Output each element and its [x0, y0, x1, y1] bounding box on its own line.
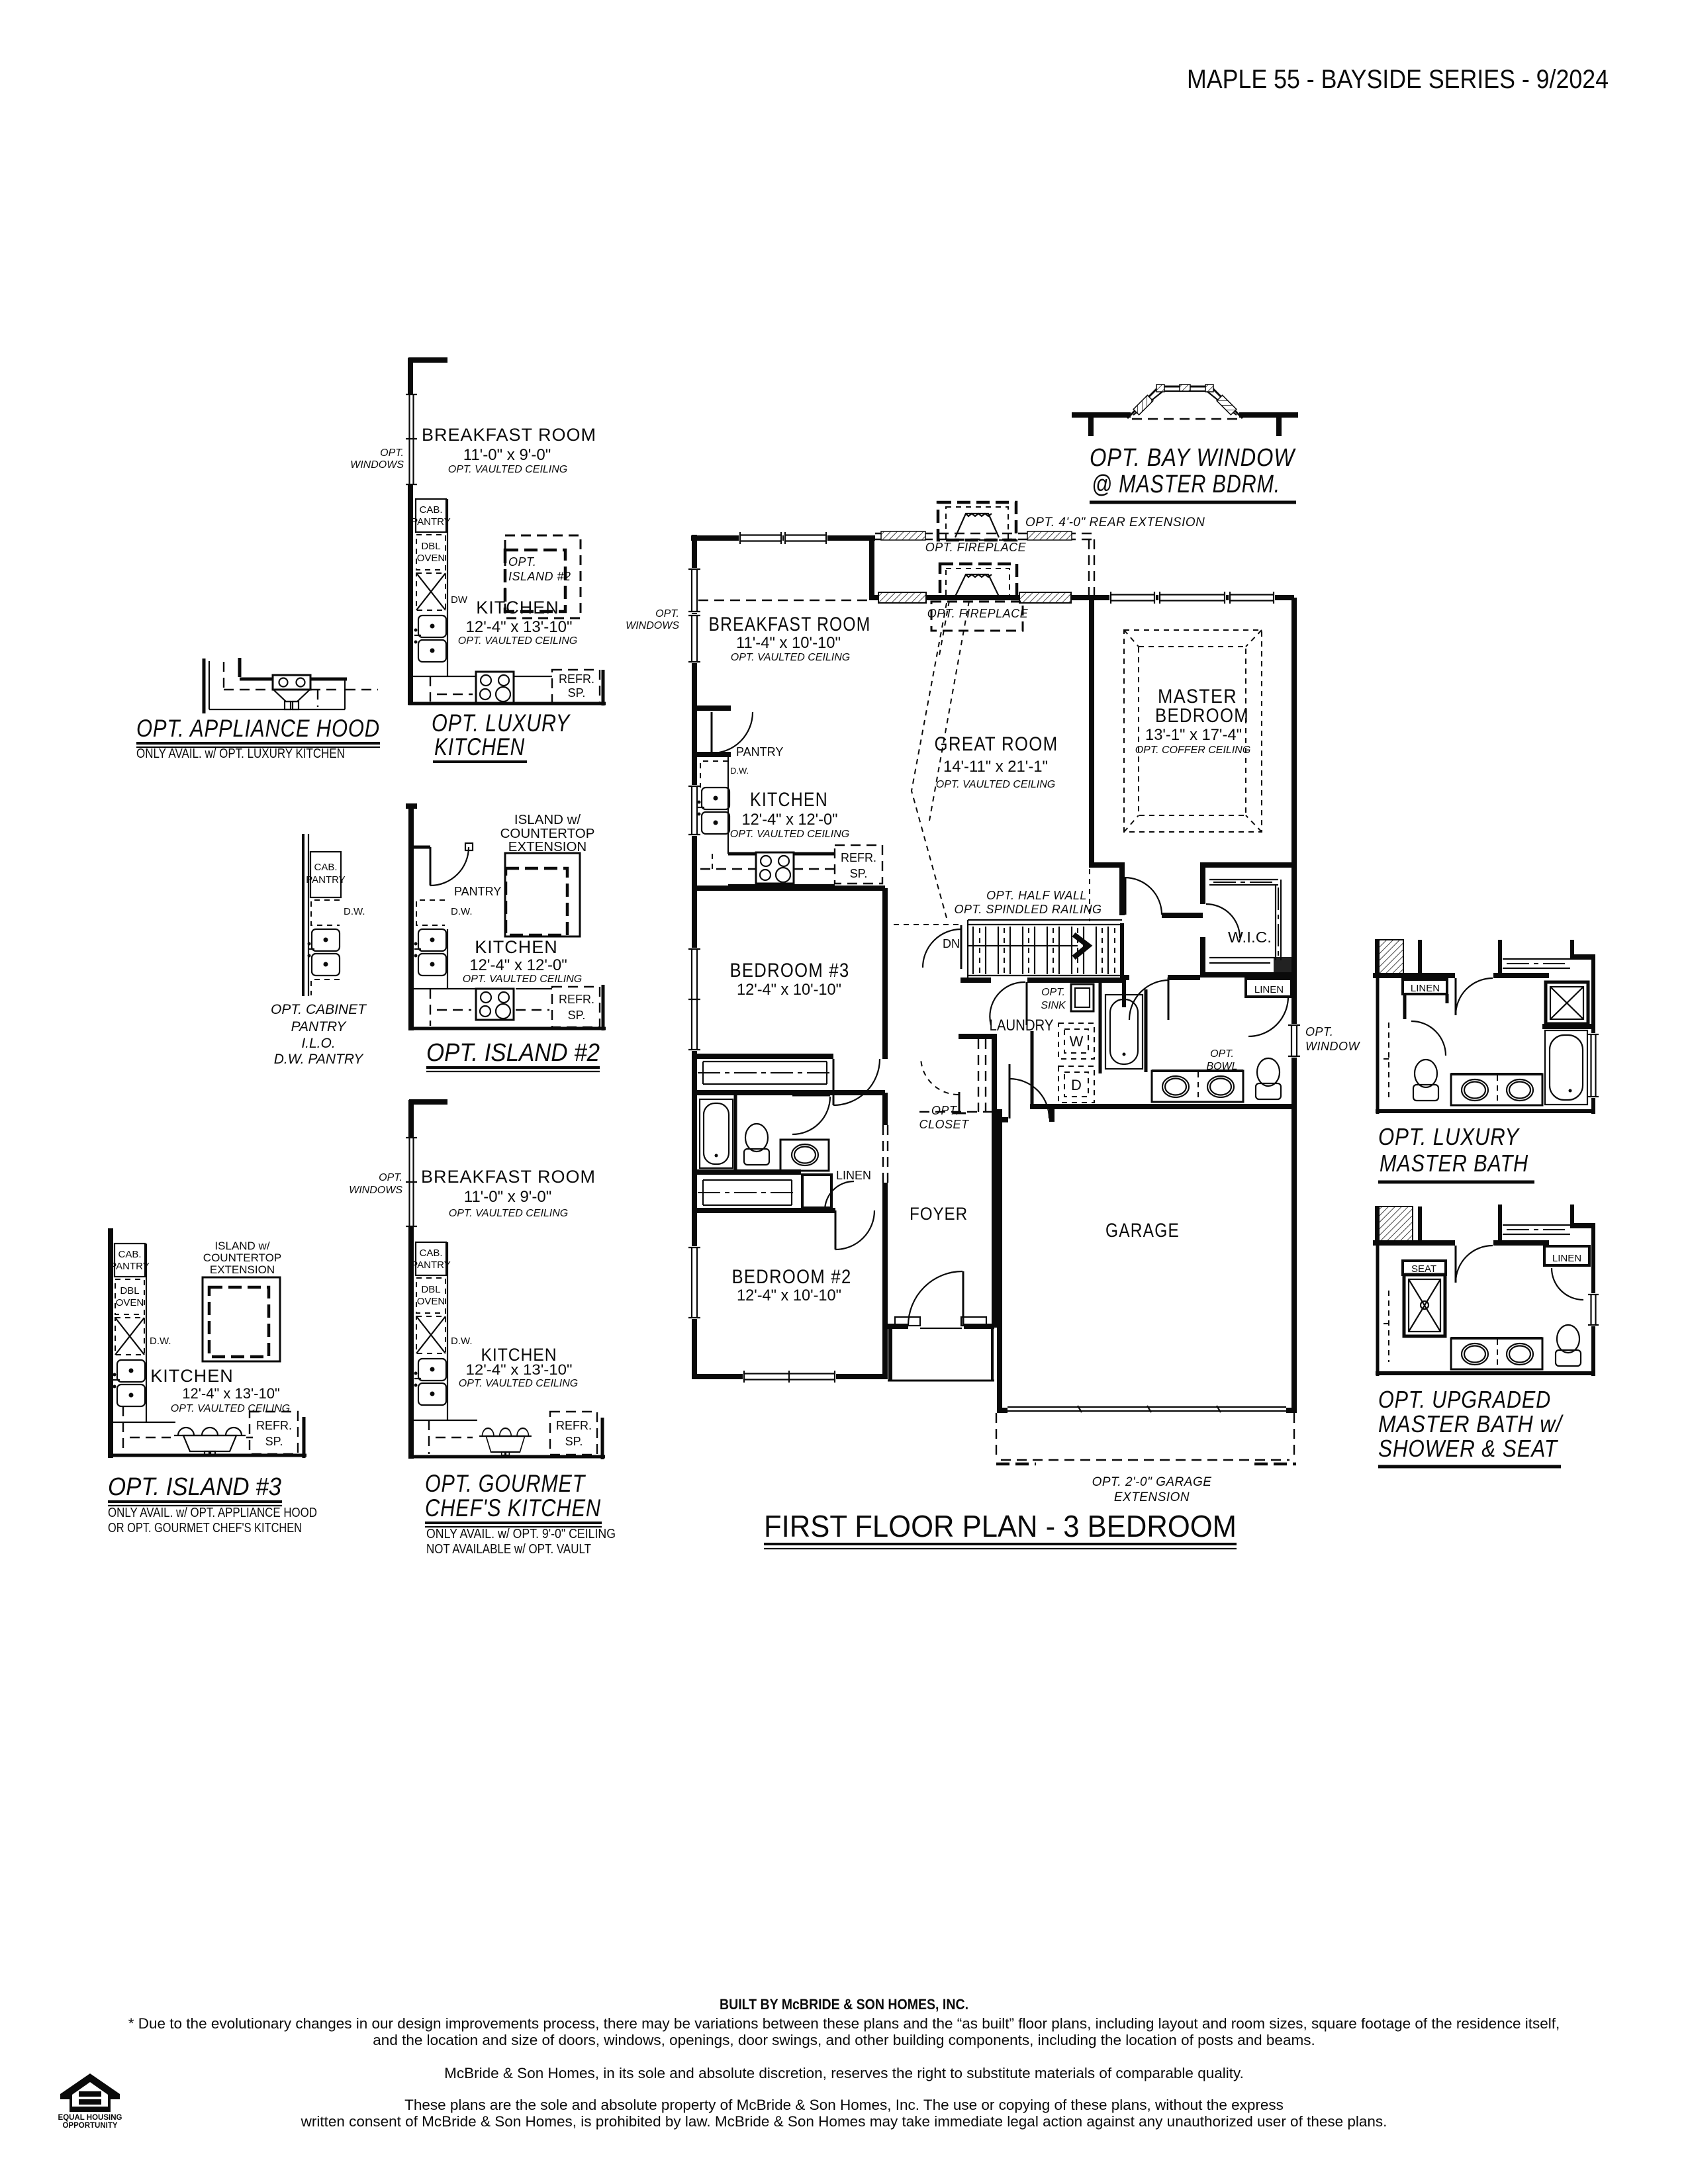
svg-text:PANTRY: PANTRY — [454, 885, 501, 898]
svg-text:REFR.: REFR. — [256, 1419, 292, 1432]
svg-text:ISLAND #2: ISLAND #2 — [508, 570, 571, 583]
svg-text:REFR.: REFR. — [559, 672, 594, 686]
svg-text:OPT. LUXURY: OPT. LUXURY — [1378, 1123, 1521, 1150]
svg-text:CAB.: CAB. — [314, 862, 337, 873]
svg-text:D.W.: D.W. — [150, 1336, 171, 1347]
svg-text:OPT. ISLAND #3: OPT. ISLAND #3 — [108, 1473, 281, 1501]
svg-text:GARAGE: GARAGE — [1105, 1220, 1180, 1242]
svg-text:FOYER: FOYER — [910, 1204, 968, 1224]
svg-text:PANTRY: PANTRY — [291, 1019, 348, 1034]
svg-text:12'-4" x 13'-10": 12'-4" x 13'-10" — [466, 1361, 573, 1378]
svg-text:12'-4" x 10'-10": 12'-4" x 10'-10" — [737, 1287, 841, 1304]
svg-text:SP.: SP. — [568, 1009, 586, 1022]
svg-text:OPT.: OPT. — [1041, 987, 1065, 998]
svg-text:OPT.: OPT. — [508, 555, 536, 569]
svg-text:D.W.: D.W. — [451, 1336, 473, 1347]
svg-text:OPT. SPINDLED RAILING: OPT. SPINDLED RAILING — [955, 903, 1102, 916]
svg-text:KITCHEN: KITCHEN — [476, 598, 559, 617]
svg-text:12'-4" x 10'-10": 12'-4" x 10'-10" — [737, 981, 841, 999]
svg-text:WINDOWS: WINDOWS — [626, 620, 679, 631]
svg-text:SEAT: SEAT — [1411, 1263, 1436, 1275]
svg-text:written consent of McBride & S: written consent of McBride & Son Homes, … — [301, 2113, 1387, 2130]
svg-text:OPT. 2'-0" GARAGE: OPT. 2'-0" GARAGE — [1092, 1475, 1212, 1489]
svg-text:PANTRY: PANTRY — [736, 745, 783, 758]
svg-text:WINDOW: WINDOW — [1305, 1040, 1360, 1053]
svg-text:11'-0" x 9'-0": 11'-0" x 9'-0" — [463, 446, 551, 464]
svg-text:OPT. VAULTED CEILING: OPT. VAULTED CEILING — [458, 635, 578, 647]
svg-text:ONLY AVAIL. w/ OPT. 9'-0" CEIL: ONLY AVAIL. w/ OPT. 9'-0" CEILING — [426, 1526, 616, 1541]
svg-text:OPT. ISLAND #2: OPT. ISLAND #2 — [426, 1039, 600, 1067]
svg-text:OPT.: OPT. — [1210, 1048, 1234, 1060]
svg-text:LINEN: LINEN — [1411, 983, 1440, 994]
svg-text:CLOSET: CLOSET — [919, 1118, 970, 1131]
svg-text:LINEN: LINEN — [836, 1169, 871, 1182]
svg-text:OPT. VAULTED CEILING: OPT. VAULTED CEILING — [730, 829, 850, 840]
svg-text:OPPORTUNITY: OPPORTUNITY — [62, 2122, 117, 2130]
svg-text:11'-0" x 9'-0": 11'-0" x 9'-0" — [464, 1188, 551, 1206]
svg-text:11'-4" x 10'-10": 11'-4" x 10'-10" — [736, 634, 841, 652]
svg-text:WINDOWS: WINDOWS — [349, 1185, 402, 1196]
svg-text:* Due to the evolutionary chan: * Due to the evolutionary changes in our… — [128, 2015, 1560, 2032]
svg-text:PANTRY: PANTRY — [306, 874, 345, 886]
svg-text:KITCHEN: KITCHEN — [475, 937, 558, 957]
svg-text:SINK: SINK — [1041, 1000, 1066, 1011]
svg-text:OPT. VAULTED CEILING: OPT. VAULTED CEILING — [731, 652, 851, 663]
svg-text:OPT.: OPT. — [1305, 1025, 1333, 1038]
svg-text:EQUAL HOUSING: EQUAL HOUSING — [58, 2114, 122, 2122]
svg-text:REFR.: REFR. — [841, 851, 876, 864]
svg-text:OPT.: OPT. — [380, 447, 404, 459]
svg-text:12'-4" x 13'-10": 12'-4" x 13'-10" — [182, 1385, 280, 1402]
svg-text:BREAKFAST ROOM: BREAKFAST ROOM — [709, 614, 871, 635]
svg-text:MASTER BATH w/: MASTER BATH w/ — [1378, 1410, 1564, 1437]
svg-text:COUNTERTOP: COUNTERTOP — [203, 1251, 281, 1264]
svg-text:SHOWER & SEAT: SHOWER & SEAT — [1378, 1435, 1559, 1462]
svg-text:BEDROOM #3: BEDROOM #3 — [730, 960, 850, 981]
svg-text:KITCHEN: KITCHEN — [434, 733, 525, 760]
svg-text:LINEN: LINEN — [1254, 984, 1284, 995]
svg-text:OPT. COFFER CEILING: OPT. COFFER CEILING — [1135, 745, 1251, 756]
svg-text:OPT. FIREPLACE: OPT. FIREPLACE — [927, 607, 1029, 620]
svg-text:OPT. VAULTED CEILING: OPT. VAULTED CEILING — [448, 464, 568, 475]
svg-text:OPT. VAULTED CEILING: OPT. VAULTED CEILING — [171, 1403, 291, 1414]
svg-text:14'-11" x 21'-1": 14'-11" x 21'-1" — [943, 758, 1048, 776]
svg-text:OPT. VAULTED CEILING: OPT. VAULTED CEILING — [936, 779, 1056, 790]
svg-text:OPT. GOURMET: OPT. GOURMET — [425, 1470, 586, 1497]
svg-text:OPT. VAULTED CEILING: OPT. VAULTED CEILING — [459, 1378, 579, 1389]
svg-text:W.I.C.: W.I.C. — [1228, 929, 1272, 946]
svg-text:12'-4" x 12'-0": 12'-4" x 12'-0" — [742, 811, 838, 829]
svg-text:13'-1" x 17'-4": 13'-1" x 17'-4" — [1145, 726, 1242, 744]
svg-text:BEDROOM: BEDROOM — [1155, 705, 1249, 727]
svg-text:OPT. VAULTED CEILING: OPT. VAULTED CEILING — [449, 1208, 569, 1219]
svg-text:ONLY AVAIL. w/ OPT. APPLIANCE: ONLY AVAIL. w/ OPT. APPLIANCE HOOD — [108, 1505, 317, 1520]
svg-text:FIRST FLOOR PLAN - 3 BEDROOM: FIRST FLOOR PLAN - 3 BEDROOM — [764, 1509, 1237, 1543]
svg-text:ONLY AVAIL. w/ OPT. LUXURY KIT: ONLY AVAIL. w/ OPT. LUXURY KITCHEN — [136, 746, 345, 761]
svg-text:NOT AVAILABLE w/ OPT. VAULT: NOT AVAILABLE w/ OPT. VAULT — [426, 1541, 591, 1557]
svg-text:ISLAND w/: ISLAND w/ — [214, 1240, 269, 1252]
svg-text:SP.: SP. — [265, 1435, 283, 1448]
svg-text:@ MASTER BDRM.: @ MASTER BDRM. — [1092, 471, 1280, 498]
svg-text:KITCHEN: KITCHEN — [750, 789, 828, 811]
svg-text:OPT. HALF WALL: OPT. HALF WALL — [986, 889, 1087, 902]
svg-text:REFR.: REFR. — [559, 993, 594, 1006]
svg-text:CHEF'S KITCHEN: CHEF'S KITCHEN — [425, 1494, 601, 1522]
svg-text:EXTENSION: EXTENSION — [508, 839, 586, 854]
svg-text:D.W.: D.W. — [451, 906, 473, 917]
svg-text:OPT. UPGRADED: OPT. UPGRADED — [1378, 1386, 1551, 1413]
svg-text:WINDOWS: WINDOWS — [350, 459, 404, 471]
svg-text:DW: DW — [451, 594, 468, 606]
svg-text:ISLAND w/: ISLAND w/ — [514, 812, 581, 827]
svg-text:BOWL: BOWL — [1206, 1061, 1237, 1072]
svg-text:OPT. FIREPLACE: OPT. FIREPLACE — [925, 541, 1027, 554]
svg-text:LAUNDRY: LAUNDRY — [990, 1017, 1054, 1034]
svg-text:D: D — [1071, 1077, 1082, 1093]
svg-text:BUILT BY McBRIDE & SON HOMES,: BUILT BY McBRIDE & SON HOMES, INC. — [720, 1996, 968, 2013]
svg-text:OPT. LUXURY: OPT. LUXURY — [432, 709, 571, 737]
svg-text:McBride & Son Homes, in its so: McBride & Son Homes, in its sole and abs… — [444, 2065, 1244, 2081]
svg-text:EXTENSION: EXTENSION — [210, 1263, 275, 1276]
svg-text:SP.: SP. — [850, 867, 868, 880]
svg-text:12'-4" x 13'-10": 12'-4" x 13'-10" — [466, 618, 573, 636]
svg-text:These plans are the sole and a: These plans are the sole and absolute pr… — [404, 2097, 1284, 2113]
svg-text:BEDROOM #2: BEDROOM #2 — [732, 1266, 852, 1288]
svg-text:OPT.: OPT. — [931, 1104, 959, 1117]
svg-text:OR OPT. GOURMET CHEF'S KITCHEN: OR OPT. GOURMET CHEF'S KITCHEN — [108, 1520, 302, 1535]
svg-text:W: W — [1070, 1033, 1084, 1050]
svg-text:BREAKFAST ROOM: BREAKFAST ROOM — [421, 1167, 596, 1187]
svg-text:OPT.: OPT. — [379, 1172, 402, 1183]
svg-text:BREAKFAST ROOM: BREAKFAST ROOM — [422, 425, 596, 445]
svg-text:OPT. APPLIANCE HOOD: OPT. APPLIANCE HOOD — [136, 715, 380, 742]
svg-text:and the location and size of d: and the location and size of doors, wind… — [373, 2032, 1315, 2048]
svg-text:MAPLE 55 - BAYSIDE SERIES - 9/: MAPLE 55 - BAYSIDE SERIES - 9/2024 — [1187, 65, 1609, 94]
svg-text:GREAT ROOM: GREAT ROOM — [935, 733, 1058, 755]
svg-text:KITCHEN: KITCHEN — [150, 1366, 234, 1386]
svg-text:OPT. VAULTED CEILING: OPT. VAULTED CEILING — [463, 974, 583, 985]
svg-text:MASTER BATH: MASTER BATH — [1380, 1150, 1528, 1177]
svg-text:D.W. PANTRY: D.W. PANTRY — [274, 1052, 365, 1067]
svg-text:EXTENSION: EXTENSION — [1114, 1490, 1190, 1504]
svg-text:OPT. 4'-0" REAR EXTENSION: OPT. 4'-0" REAR EXTENSION — [1025, 516, 1205, 529]
svg-text:12'-4" x 12'-0": 12'-4" x 12'-0" — [469, 956, 567, 974]
svg-text:D.W.: D.W. — [730, 766, 749, 776]
svg-text:I.L.O.: I.L.O. — [301, 1036, 335, 1051]
svg-text:LINEN: LINEN — [1552, 1253, 1581, 1264]
svg-text:SP.: SP. — [565, 1435, 583, 1448]
svg-text:OPT. BAY WINDOW: OPT. BAY WINDOW — [1090, 444, 1296, 472]
svg-text:SP.: SP. — [568, 686, 586, 700]
svg-text:D.W.: D.W. — [344, 906, 365, 917]
svg-text:DN.: DN. — [943, 937, 963, 950]
svg-text:OPT. CABINET: OPT. CABINET — [271, 1002, 367, 1017]
svg-text:OPT.: OPT. — [655, 608, 679, 619]
svg-text:REFR.: REFR. — [556, 1419, 592, 1432]
